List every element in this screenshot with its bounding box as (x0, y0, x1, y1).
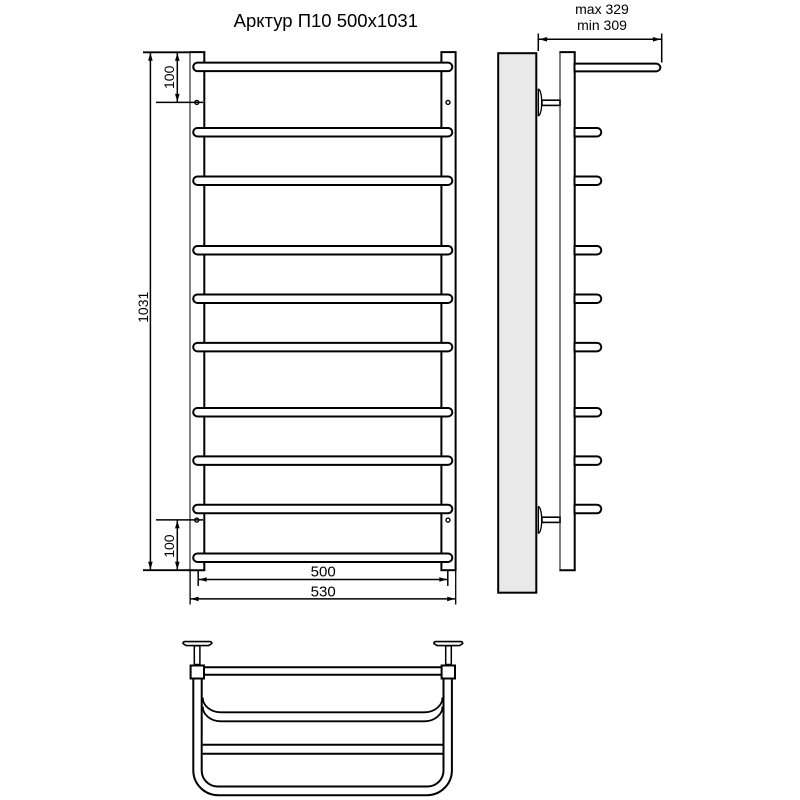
svg-text:100: 100 (161, 65, 177, 89)
svg-text:1031: 1031 (135, 292, 151, 323)
svg-text:Арктур П10 500x1031: Арктур П10 500x1031 (234, 10, 418, 31)
svg-text:100: 100 (161, 534, 177, 558)
svg-text:max 329: max 329 (575, 1, 629, 17)
svg-text:530: 530 (311, 583, 336, 600)
svg-text:500: 500 (311, 564, 336, 581)
svg-text:min 309: min 309 (577, 17, 627, 33)
